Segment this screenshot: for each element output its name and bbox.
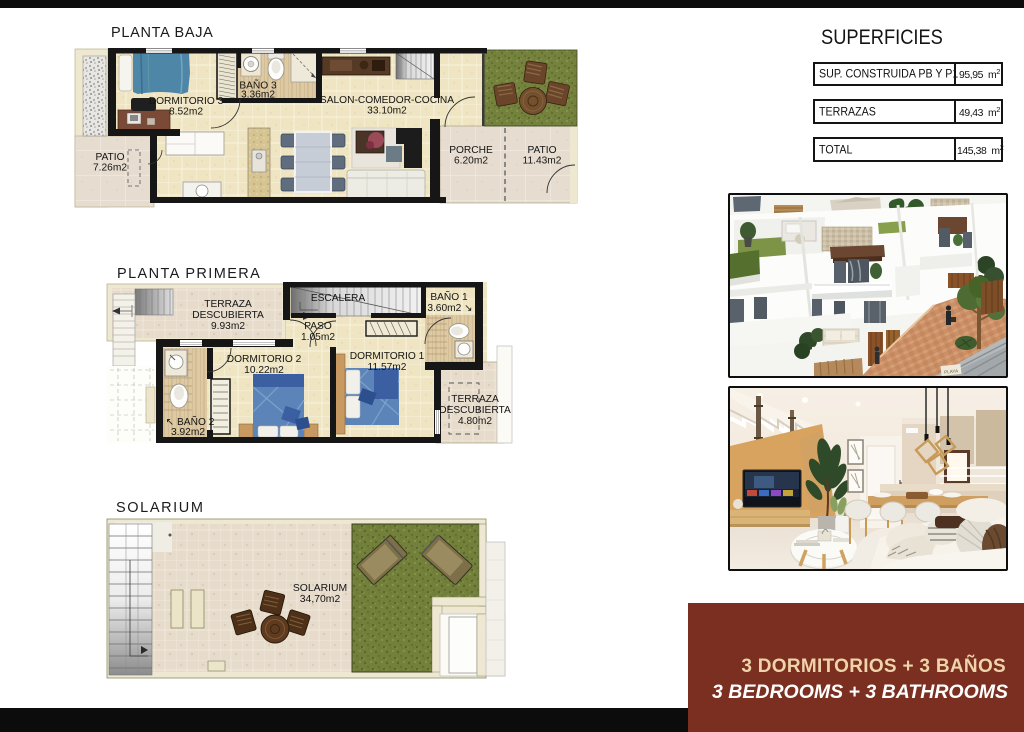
svg-text:PATIO: PATIO [527, 145, 556, 156]
svg-text:PORCHE: PORCHE [449, 145, 493, 156]
svg-text:DORMITORIO 2: DORMITORIO 2 [227, 354, 302, 365]
svg-text:DESCUBIERTA: DESCUBIERTA [439, 405, 511, 416]
svg-text:3.92m2: 3.92m2 [171, 427, 205, 438]
svg-text:TERRAZA: TERRAZA [451, 394, 499, 405]
svg-text:34,70m2: 34,70m2 [300, 594, 341, 605]
svg-text:SOLARIUM: SOLARIUM [293, 583, 347, 594]
svg-text:SALON-COMEDOR-COCINA: SALON-COMEDOR-COCINA [320, 95, 454, 106]
svg-text:33.10m2: 33.10m2 [367, 106, 407, 117]
svg-text:DORMITORIO 1: DORMITORIO 1 [350, 351, 425, 362]
svg-text:11.57m2: 11.57m2 [368, 362, 407, 373]
svg-text:DORMITORIO 3: DORMITORIO 3 [149, 96, 224, 107]
svg-text:ESCALERA: ESCALERA [311, 293, 366, 304]
svg-text:9.93m2: 9.93m2 [211, 321, 245, 332]
svg-text:4.80m2: 4.80m2 [458, 416, 492, 427]
svg-text:1.05m2: 1.05m2 [301, 332, 335, 343]
svg-text:3.60m2 ↘: 3.60m2 ↘ [427, 303, 472, 314]
svg-text:7.26m2: 7.26m2 [93, 163, 127, 174]
svg-text:8.52m2: 8.52m2 [169, 107, 203, 118]
svg-text:PATIO: PATIO [95, 152, 124, 163]
svg-text:11.43m2: 11.43m2 [523, 156, 562, 167]
svg-text:3.36m2: 3.36m2 [241, 90, 275, 101]
svg-text:DESCUBIERTA: DESCUBIERTA [192, 310, 264, 321]
svg-text:6.20m2: 6.20m2 [454, 156, 488, 167]
svg-text:PASO: PASO [304, 321, 332, 332]
svg-text:BAÑO 1: BAÑO 1 [430, 290, 468, 303]
svg-text:TERRAZA: TERRAZA [204, 299, 252, 310]
svg-text:10.22m2: 10.22m2 [244, 365, 284, 376]
